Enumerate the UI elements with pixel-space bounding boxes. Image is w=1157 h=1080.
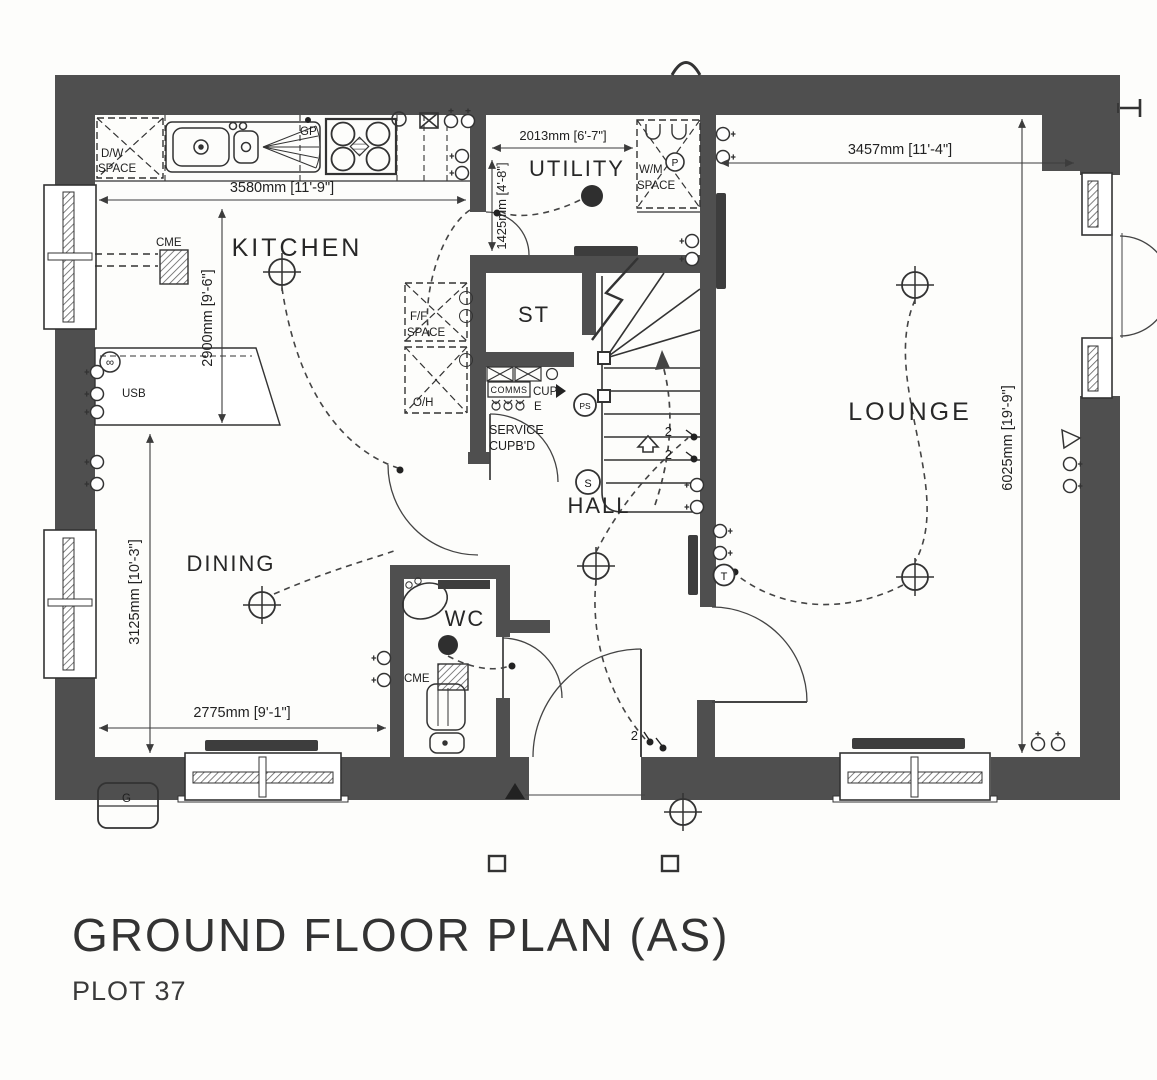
wall-right-a — [1080, 75, 1120, 175]
door-kitchen-dining — [388, 465, 478, 555]
wall-st-stair-divider — [582, 273, 596, 335]
label-dw: D/W — [101, 148, 124, 160]
socket-icon — [1032, 732, 1045, 751]
radiator — [205, 740, 318, 751]
dim-dining-depth: 3125mm [10'-3"] — [127, 539, 143, 644]
label-kitchen: KITCHEN — [232, 234, 363, 262]
floor-plan-drawing: 3580mm [11'-9"] 2900mm [9'-6"] 2013mm [6… — [0, 0, 1157, 880]
wall-bottom-c — [641, 757, 841, 800]
socket-icon — [1052, 732, 1065, 751]
label-gas-meter: G — [122, 793, 131, 805]
utility-ceiling-light — [581, 185, 603, 207]
title-block: GROUND FLOOR PLAN (AS) PLOT 37 — [72, 908, 729, 1007]
label-two-c: 2 — [631, 728, 638, 743]
wall-bottom-a — [55, 757, 187, 800]
socket-icon — [680, 235, 699, 248]
ceiling-light-icon — [896, 266, 934, 304]
dim-kitchen-depth: 2900mm [9'-6"] — [200, 269, 216, 366]
label-ff: F/F — [410, 311, 427, 323]
kitchen-fixtures — [85, 109, 475, 426]
tv-aerial-icon — [1062, 430, 1080, 448]
svg-text:T: T — [721, 571, 728, 583]
label-usb: USB — [122, 388, 146, 400]
gas-point-dot — [305, 117, 311, 123]
window-dining-bottom — [178, 753, 348, 802]
socket-icon — [1064, 480, 1083, 493]
wall-st-bottom — [470, 352, 574, 367]
label-service: SERVICE — [489, 423, 544, 437]
socket-icon — [717, 151, 736, 164]
up-arrowhead — [655, 350, 670, 370]
wall-right-b — [1080, 396, 1120, 800]
window-lounge-right-upper — [1082, 173, 1112, 235]
label-cup: CUP — [533, 386, 558, 398]
window-lounge-bottom — [833, 753, 997, 802]
label-tv-symbol: ∞ — [106, 357, 114, 369]
dim-kitchen-width: 3580mm [11'-9"] — [230, 180, 334, 196]
dim-utility-depth: 1425mm [4'-8"] — [494, 162, 509, 249]
label-wm: W/M — [639, 164, 663, 176]
winder-3 — [606, 330, 700, 358]
plumbing-point-icon: P — [666, 153, 684, 171]
wall-left-b — [55, 327, 95, 532]
wall-wc-right-lower — [496, 698, 510, 757]
hob — [326, 119, 396, 174]
porch-post — [662, 856, 678, 871]
label-wm-space: SPACE — [637, 180, 675, 192]
ceiling-light-icon — [577, 547, 615, 585]
wall-front-door-stub — [697, 700, 715, 757]
svg-text:PS: PS — [579, 401, 591, 411]
svg-text:P: P — [672, 158, 679, 169]
wall-utility-stairs — [470, 255, 716, 273]
dimensions — [99, 119, 1074, 753]
smoke-detector-icon: S — [576, 470, 600, 494]
dim-lounge-depth: 6025mm [19'-9"] — [1000, 385, 1016, 490]
ps-point-icon: PS — [574, 394, 596, 416]
porch-post — [489, 856, 505, 871]
label-two-b: 2 — [665, 447, 672, 462]
french-doors — [1112, 233, 1157, 338]
thermostat-icon: T — [714, 565, 735, 586]
label-ff-space: SPACE — [407, 327, 445, 339]
wall-left-a — [55, 75, 95, 187]
sink — [166, 122, 320, 172]
wall-top — [55, 75, 1120, 115]
loft-arrow-icon — [638, 436, 658, 452]
floor-plan-page: 3580mm [11'-9"] 2900mm [9'-6"] 2013mm [6… — [0, 0, 1157, 1080]
newel-post — [598, 390, 610, 402]
label-two-a: 2 — [665, 424, 672, 439]
window-lounge-right-lower — [1082, 338, 1112, 398]
label-dining: DINING — [187, 551, 276, 576]
winder-1 — [606, 273, 664, 358]
stairs-string — [602, 276, 700, 512]
socket-icon — [372, 652, 391, 665]
svg-text:S: S — [584, 478, 591, 490]
label-wc: WC — [445, 606, 486, 631]
wall-bottom-b — [341, 757, 529, 800]
stairs — [592, 258, 700, 512]
socket-icon — [717, 128, 736, 141]
plan-title: GROUND FLOOR PLAN (AS) — [72, 908, 729, 962]
light-symbols — [492, 400, 524, 410]
cme-extractor-wc — [438, 664, 468, 690]
newel-post — [598, 352, 610, 364]
label-cme-kitchen: CME — [156, 237, 182, 249]
wall-wc-left — [390, 565, 404, 757]
socket-icon — [714, 547, 733, 560]
cme-extractor-kitchen — [95, 250, 188, 284]
label-cme-wc: CME — [404, 673, 430, 685]
dim-lounge-width: 3457mm [11'-4"] — [848, 142, 952, 158]
ceiling-light-icon — [243, 586, 281, 624]
label-e: E — [534, 401, 542, 413]
dim-dining-width: 2775mm [9'-1"] — [193, 705, 290, 721]
label-oh: O/H — [413, 397, 433, 409]
window-kitchen-left — [44, 185, 96, 329]
label-comms: COMMS — [491, 385, 528, 395]
annotation-texts: D/W SPACE GP W/M SPACE F/F SPACE O/H CME… — [98, 126, 675, 805]
dim-utility-width: 2013mm [6'-7"] — [519, 128, 606, 143]
socket-icon — [450, 150, 469, 163]
plan-plot-number: PLOT 37 — [72, 976, 729, 1007]
wc-fixtures — [397, 577, 490, 753]
label-lounge: LOUNGE — [848, 398, 972, 426]
flue-arc — [672, 63, 700, 76]
socket-icon — [685, 479, 704, 492]
socket-icon — [1064, 458, 1083, 471]
worktop-left — [95, 348, 280, 425]
socket-icon — [450, 167, 469, 180]
ceiling-light-icon — [896, 558, 934, 596]
window-dining-left — [44, 530, 96, 678]
radiator — [688, 535, 698, 595]
door-front — [525, 649, 645, 795]
radiator — [716, 193, 726, 289]
room-labels: KITCHEN UTILITY LOUNGE DINING HALL WC ST — [187, 156, 972, 631]
cupboard-door-triangle — [556, 384, 566, 398]
radiator — [852, 738, 965, 749]
wall-lobby — [496, 620, 550, 633]
wiring-runs — [274, 200, 927, 740]
external-tap-icon — [1118, 99, 1140, 117]
wall-kitchen-hall-cap — [468, 452, 490, 464]
wall-kitchen-utility — [470, 115, 486, 212]
label-store: ST — [518, 302, 550, 327]
label-cupbd: CUPB'D — [489, 439, 535, 453]
wc-shelf — [438, 580, 490, 589]
wall-wc-top — [390, 565, 510, 579]
label-hall: HALL — [567, 493, 630, 518]
radiator — [574, 246, 638, 256]
toilet — [427, 684, 465, 753]
outer-walls — [55, 75, 1120, 800]
wc-ceiling-light — [438, 635, 458, 655]
label-dw-space: SPACE — [98, 163, 136, 175]
label-utility: UTILITY — [529, 156, 625, 181]
spur-box — [420, 113, 438, 128]
socket-icon — [714, 525, 733, 538]
door-lounge — [712, 607, 807, 702]
socket-icon — [372, 674, 391, 687]
label-gp: GP — [300, 126, 317, 138]
